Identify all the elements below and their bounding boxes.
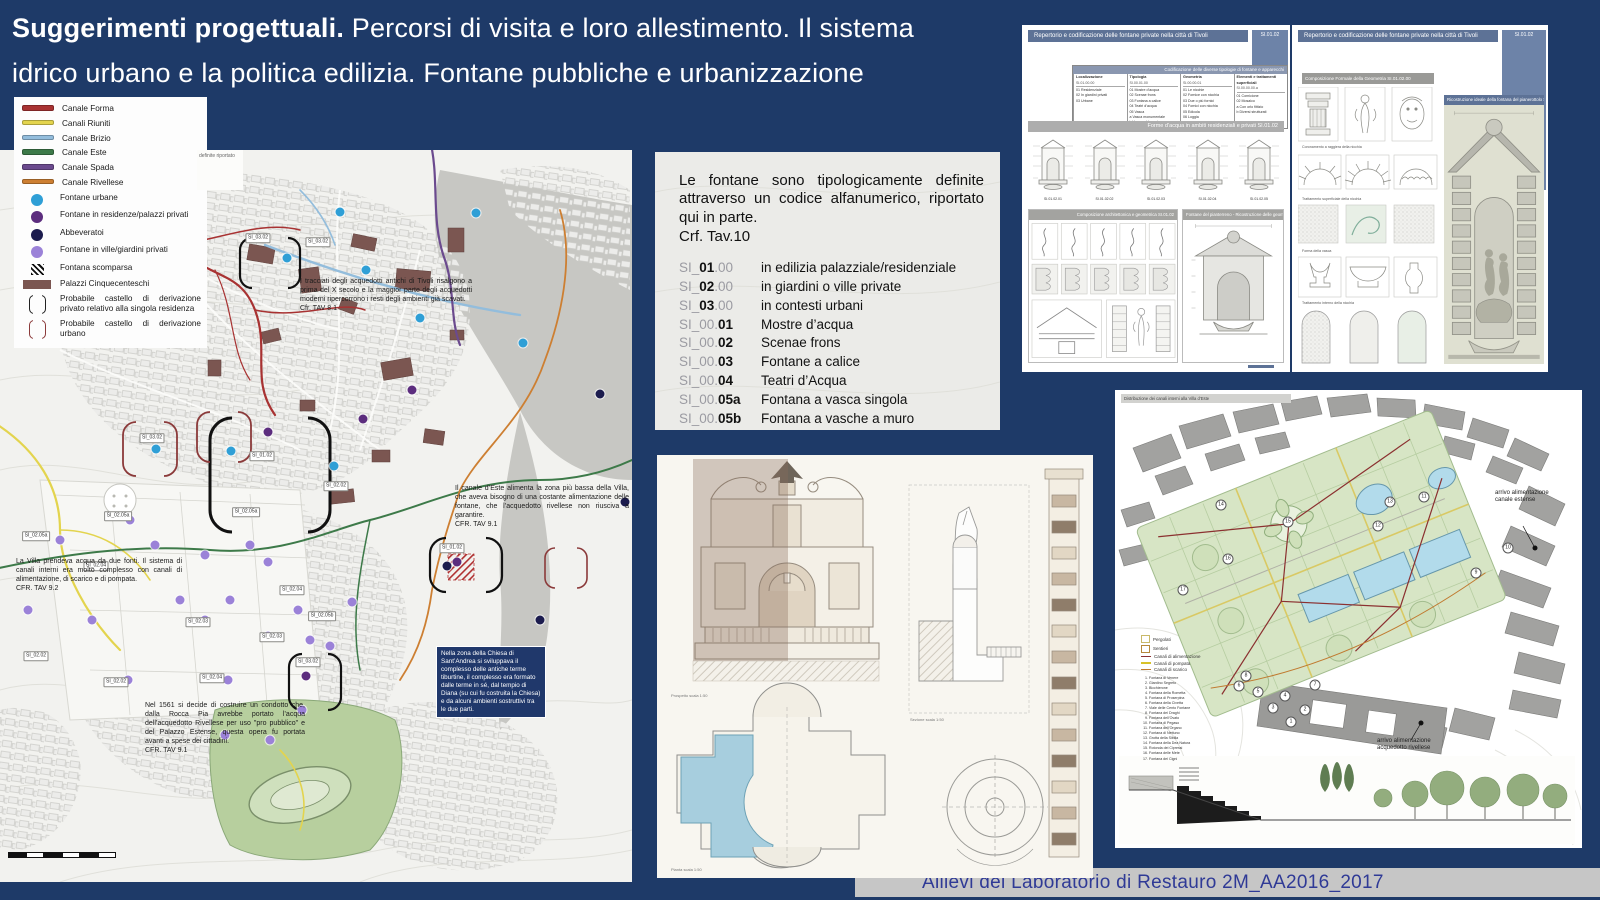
garden-legend-item: Pergolati bbox=[1141, 635, 1233, 643]
code-row: SI_00.01 Mostre d’acqua bbox=[679, 316, 984, 335]
fountain-dot bbox=[152, 445, 161, 454]
garden-legend-item: Canali di scarico bbox=[1141, 667, 1233, 672]
legend-swatch bbox=[22, 295, 52, 314]
code-row: SI_02.00 in giardini o ville private bbox=[679, 278, 984, 297]
fountain-number-marker: 3 bbox=[1268, 703, 1279, 714]
legend-swatch bbox=[22, 135, 54, 141]
legend-swatch bbox=[22, 229, 52, 241]
caption-sezione: Sezione scala 1:50 bbox=[910, 717, 944, 722]
caption-prospetto: Prospetto scala 1:50 bbox=[671, 693, 707, 698]
fountain-dot bbox=[264, 558, 273, 567]
thumbnail-caption: SI.01.02.03 bbox=[1133, 197, 1179, 201]
legend-swatch bbox=[22, 194, 52, 206]
code-description: in giardini o ville private bbox=[761, 278, 901, 297]
fountain-dot bbox=[283, 254, 292, 263]
tivoli-map-panel: Canale Forma Canali Riuniti Canale Brizi… bbox=[0, 150, 632, 882]
legend-label: Palazzi Cinquecenteschi bbox=[60, 279, 149, 289]
repertorio-panel-a: Repertorio e codificazione delle fontane… bbox=[1022, 25, 1290, 372]
legend-item: Palazzi Cinquecenteschi bbox=[22, 279, 201, 289]
fountain-dot bbox=[176, 596, 185, 605]
panel-a-header: Repertorio e codificazione delle fontane… bbox=[1028, 30, 1248, 42]
garden-legend: Pergolati Sentieri Canali di alimentazio… bbox=[1141, 635, 1233, 762]
fountain-number-marker: 1 bbox=[1286, 717, 1297, 728]
fountain-codes-panel: Le fontane sono tipologicamente definite… bbox=[655, 152, 1000, 430]
fountain-number-marker: 7 bbox=[1310, 680, 1321, 691]
fountain-number-marker: 9 bbox=[1471, 568, 1482, 579]
fountain-code-chip: SI_03.02 bbox=[245, 233, 270, 243]
villa-este-panel: Distribuzione dei canali interni alla Vi… bbox=[1115, 390, 1582, 848]
fountain-thumbnail: SI.01.02.03 bbox=[1133, 136, 1179, 201]
legend-item: Fontane in residenze/palazzi privati bbox=[22, 210, 201, 223]
villa-este-artwork bbox=[1115, 390, 1582, 848]
fountain-dot bbox=[596, 390, 605, 399]
code-row: SI_00.05b Fontana a vasche a muro bbox=[679, 410, 984, 429]
garden-fountain-list: Fontana di VenereGiardino SegretoBicchie… bbox=[1141, 676, 1233, 762]
panel-b-band: Ricostruzione ideale della fontana del p… bbox=[1444, 95, 1544, 105]
code-description: Fontana a vasca singola bbox=[761, 391, 907, 410]
legend-label: Abbeveratoi bbox=[60, 228, 104, 238]
legend-item: Fontana scomparsa bbox=[22, 263, 201, 275]
fountain-dot bbox=[302, 672, 311, 681]
code-description: Mostre d’acqua bbox=[761, 316, 853, 335]
fountain-number-marker: 2 bbox=[1300, 705, 1311, 716]
legend-label: Fontane in residenze/palazzi privati bbox=[60, 210, 188, 220]
codes-reference: Crf. Tav.10 bbox=[679, 228, 984, 245]
fountain-dot bbox=[56, 536, 65, 545]
panel-b-catalog-artwork bbox=[1298, 87, 1438, 365]
legend-swatch bbox=[22, 164, 54, 170]
code-id: SI_02.00 bbox=[679, 278, 761, 297]
fountain-code-chip: SI_02.05a bbox=[104, 511, 132, 521]
legend-item: Probabile castello di derivazione privat… bbox=[22, 294, 201, 315]
fountain-code-chip: SI_01.02 bbox=[249, 451, 274, 461]
fountain-code-chip: SI_03.02 bbox=[139, 433, 164, 443]
fountain-dot bbox=[306, 636, 315, 645]
title-rest: Percorsi di visita e loro allestimento. … bbox=[344, 13, 914, 43]
thumbnail-caption: SI.01.02.02 bbox=[1082, 197, 1128, 201]
code-description: Fontane a calice bbox=[761, 353, 860, 372]
code-row: SI_00.02 Scenae frons bbox=[679, 334, 984, 353]
legend-swatch bbox=[22, 280, 52, 289]
fountain-thumbnail: SI.01.02.05 bbox=[1236, 136, 1282, 201]
code-id: SI_00.04 bbox=[679, 372, 761, 391]
fountain-number-marker: 8 bbox=[1241, 671, 1252, 682]
slide-root: Suggerimenti progettuali. Percorsi di vi… bbox=[0, 0, 1600, 900]
code-row: SI_00.04 Teatri d’Acqua bbox=[679, 372, 984, 391]
title-bold: Suggerimenti progettuali. bbox=[12, 13, 344, 43]
legend-swatch bbox=[22, 120, 54, 126]
fountain-code-chip: SI_02.03 bbox=[185, 617, 210, 627]
code-id: SI_00.05a bbox=[679, 391, 761, 410]
fountain-thumbnail: SI.01.02.01 bbox=[1030, 136, 1076, 201]
fountain-dot bbox=[359, 415, 368, 424]
fountain-reconstruction bbox=[1444, 105, 1544, 364]
code-row: SI_03.00 in contesti urbani bbox=[679, 297, 984, 316]
map-label-fragment: definite riportato bbox=[197, 150, 243, 190]
panel-b-header: Repertorio e codificazione delle fontane… bbox=[1298, 30, 1498, 42]
codification-column: Localizzazione SI.01.00.00 01 Residenzia… bbox=[1073, 74, 1127, 128]
thumbnail-caption: SI.01.02.04 bbox=[1185, 197, 1231, 201]
panel-a-band: Forme d’acqua in ambiti residenziali e p… bbox=[1028, 121, 1284, 132]
fountain-number-marker: 16 bbox=[1223, 554, 1234, 565]
composizione-subpanel-header: Composizione architettonica e geometrica… bbox=[1029, 210, 1177, 220]
legend-item: Canale Brizio bbox=[22, 134, 201, 144]
legend-swatch bbox=[22, 179, 54, 185]
code-description: Scenae frons bbox=[761, 334, 841, 353]
legend-label: Canale Este bbox=[62, 148, 107, 158]
thumbnail-caption: SI.01.02.01 bbox=[1030, 197, 1076, 201]
map-scale-bar bbox=[8, 852, 116, 858]
fountain-number-marker: 10 bbox=[1503, 543, 1514, 554]
fountain-dot bbox=[326, 642, 335, 651]
ricostruzione-artwork bbox=[1183, 220, 1284, 352]
legend-swatch bbox=[22, 246, 52, 258]
fountain-code-chip: SI_01.02 bbox=[439, 543, 464, 553]
code-id: SI_00.02 bbox=[679, 334, 761, 353]
title-line-2: idrico urbano e la politica edilizia. Fo… bbox=[12, 51, 1020, 96]
code-id: SI_00.03 bbox=[679, 353, 761, 372]
code-row: SI_01.00 in edilizia palazziale/residenz… bbox=[679, 259, 984, 278]
legend-label: Fontana scomparsa bbox=[60, 263, 132, 273]
codification-columns: Localizzazione SI.01.00.00 01 Residenzia… bbox=[1073, 74, 1287, 128]
legend-label: Canali Riuniti bbox=[62, 119, 110, 129]
fountain-dot bbox=[264, 428, 273, 437]
code-description: in contesti urbani bbox=[761, 297, 863, 316]
map-note: Nella zona della Chiesa di Sant’Andrea s… bbox=[436, 646, 546, 718]
code-description: Fontana a vasche a muro bbox=[761, 410, 914, 429]
category-label: Trattamento superficiale della nicchia bbox=[1302, 197, 1361, 201]
codes-list: SI_01.00 in edilizia palazziale/residenz… bbox=[679, 259, 984, 429]
fountain-dot bbox=[227, 447, 236, 456]
map-note: Nel 1561 si decide di costruire un condo… bbox=[145, 702, 305, 756]
category-label: Forma della vasca bbox=[1302, 249, 1331, 253]
legend-label: Fontane in ville/giardini privati bbox=[60, 245, 168, 255]
composizione-artwork bbox=[1029, 220, 1178, 362]
fountain-dot bbox=[224, 676, 233, 685]
fountain-dot bbox=[88, 616, 97, 625]
category-label: Coronamento a raggiera della nicchia bbox=[1302, 145, 1362, 149]
fountain-number-marker: 5 bbox=[1253, 687, 1264, 698]
garden-legend-swatches: Pergolati Sentieri Canali di alimentazio… bbox=[1141, 635, 1233, 672]
fountain-code-chip: SI_03.02 bbox=[295, 657, 320, 667]
fountain-drawings-panel: Prospetto scala 1:50 Sezione scala 1:50 … bbox=[657, 455, 1093, 878]
code-row: SI_00.03 Fontane a calice bbox=[679, 353, 984, 372]
fountain-code-chip: SI_02.02 bbox=[103, 677, 128, 687]
codification-column: Tipologia SI.00.01.00 01 Mostre d’acqua0… bbox=[1127, 74, 1181, 128]
fountain-number-marker: 12 bbox=[1373, 521, 1384, 532]
code-description: Teatri d’Acqua bbox=[761, 372, 847, 391]
fountain-dot bbox=[246, 541, 255, 550]
fountain-thumbnail: SI.01.02.02 bbox=[1082, 136, 1128, 201]
repertorio-panel-b: Repertorio e codificazione delle fontane… bbox=[1292, 25, 1548, 372]
legend-label: Canale Spada bbox=[62, 163, 114, 173]
title-line-1: Suggerimenti progettuali. Percorsi di vi… bbox=[12, 6, 1020, 51]
annotation-canale-estense: arrivo alimentazione canale estense bbox=[1495, 490, 1567, 504]
fountain-dot bbox=[348, 598, 357, 607]
fountain-code-chip: SI_02.03 bbox=[259, 632, 284, 642]
fountain-dot bbox=[336, 208, 345, 217]
fountain-dot bbox=[519, 339, 528, 348]
legend-swatch bbox=[22, 211, 52, 223]
fountain-code-chip: SI_02.05a bbox=[22, 531, 50, 541]
fountain-number-marker: 15 bbox=[1283, 517, 1294, 528]
fountain-dot bbox=[151, 541, 160, 550]
garden-fountain-name: Fontana dei Cigni bbox=[1149, 757, 1233, 762]
fountain-number-marker: 13 bbox=[1385, 497, 1396, 508]
fountain-number-marker: 14 bbox=[1216, 500, 1227, 511]
fountain-reconstruction-artwork bbox=[1444, 105, 1544, 364]
fountain-thumbnails: SI.01.02.01 SI.01.02.02 SI.01.02.03 SI.0… bbox=[1030, 136, 1282, 201]
legend-swatch bbox=[22, 264, 52, 275]
fountain-code-chip: SI_02.04 bbox=[279, 585, 304, 595]
fountain-thumbnail: SI.01.02.04 bbox=[1185, 136, 1231, 201]
category-label: Trattamento interno della nicchia bbox=[1302, 301, 1354, 305]
garden-panel-header: Distribuzione dei canali interni alla Vi… bbox=[1121, 394, 1291, 403]
legend-label: Probabile castello di derivazione privat… bbox=[60, 294, 201, 315]
legend-swatch bbox=[22, 149, 54, 155]
fountain-number-marker: 17 bbox=[1178, 585, 1189, 596]
codes-paragraph: Le fontane sono tipologicamente definite… bbox=[679, 172, 984, 227]
legend-item: Canale Spada bbox=[22, 163, 201, 173]
page-title: Suggerimenti progettuali. Percorsi di vi… bbox=[12, 6, 1020, 96]
garden-legend-item: Sentieri bbox=[1141, 645, 1233, 653]
legend-item: Canali Riuniti bbox=[22, 119, 201, 129]
fountain-dot bbox=[294, 606, 303, 615]
fountain-dot bbox=[408, 386, 417, 395]
codification-table-title: Codificazione delle diverse tipologie di… bbox=[1073, 66, 1287, 74]
composizione-subpanel: Composizione architettonica e geometrica… bbox=[1028, 209, 1178, 363]
ricostruzione-subpanel-header: Fontane del pianterreno - Ricostruzione … bbox=[1183, 210, 1283, 220]
fountain-number-marker: 6 bbox=[1234, 681, 1245, 692]
legend-item: Canale Forma bbox=[22, 104, 201, 114]
panel-a-scale-dash bbox=[1248, 365, 1274, 368]
panel-b-subheader: Composizione Formale della Geometria SI.… bbox=[1302, 73, 1434, 84]
fountain-dot bbox=[24, 606, 33, 615]
fountain-dot bbox=[362, 266, 371, 275]
legend-item: Fontane urbane bbox=[22, 193, 201, 206]
legend-item: Canale Rivellese bbox=[22, 178, 201, 188]
caption-pianta: Pianta scala 1:50 bbox=[671, 867, 702, 872]
fountain-dot bbox=[416, 314, 425, 323]
ricostruzione-subpanel: Fontane del pianterreno - Ricostruzione … bbox=[1182, 209, 1284, 363]
legend-item: Probabile castello di derivazione urbano bbox=[22, 319, 201, 340]
code-id: SI_00.05b bbox=[679, 410, 761, 429]
fountain-dot bbox=[453, 558, 462, 567]
map-note: Il canale d’Este alimenta la zona più ba… bbox=[455, 485, 629, 530]
legend-label: Canale Forma bbox=[62, 104, 114, 114]
annotation-acquedotto-rivellese: arrivo alimentazione acquedotto rivelles… bbox=[1377, 738, 1457, 752]
fountain-drawings-artwork bbox=[657, 455, 1093, 878]
codification-column: Elementi e trattamenti superficiali SI.0… bbox=[1234, 74, 1288, 128]
legend-item: Canale Este bbox=[22, 148, 201, 158]
codification-table: Codificazione delle diverse tipologie di… bbox=[1072, 65, 1288, 129]
legend-label: Canale Brizio bbox=[62, 134, 111, 144]
legend-item: Fontane in ville/giardini privati bbox=[22, 245, 201, 258]
codification-column: Geometria SI.00.00.01 01 Le nicchie02 Fo… bbox=[1180, 74, 1234, 128]
legend-label: Canale Rivellese bbox=[62, 178, 123, 188]
fountain-code-chip: SI_02.05a bbox=[232, 507, 260, 517]
fountain-code-chip: SI_03.02 bbox=[305, 237, 330, 247]
legend-item: Abbeveratoi bbox=[22, 228, 201, 241]
fountain-number-marker: 11 bbox=[1419, 492, 1430, 503]
code-id: SI_00.01 bbox=[679, 316, 761, 335]
fountain-dot bbox=[536, 616, 545, 625]
fountain-code-chip: SI_02.02 bbox=[323, 481, 348, 491]
fountain-dot bbox=[443, 562, 452, 571]
fountain-code-chip: SI_02.04 bbox=[199, 673, 224, 683]
fountain-dot bbox=[201, 551, 210, 560]
fountain-dot bbox=[226, 596, 235, 605]
garden-legend-item: Canali di alimentazione bbox=[1141, 654, 1233, 659]
fountain-code-chip: SI_02.02 bbox=[23, 651, 48, 661]
map-legend: Canale Forma Canali Riuniti Canale Brizi… bbox=[14, 97, 207, 348]
code-row: SI_00.05a Fontana a vasca singola bbox=[679, 391, 984, 410]
code-id: SI_01.00 bbox=[679, 259, 761, 278]
legend-label: Probabile castello di derivazione urbano bbox=[60, 319, 201, 340]
map-note: I tracciati degli acquedotti antichi di … bbox=[300, 278, 472, 314]
code-id: SI_03.00 bbox=[679, 297, 761, 316]
code-description: in edilizia palazziale/residenziale bbox=[761, 259, 956, 278]
fountain-dot bbox=[472, 209, 481, 218]
fountain-number-marker: 4 bbox=[1280, 691, 1291, 702]
legend-swatch bbox=[22, 105, 54, 111]
garden-legend-item: Canali di pompata bbox=[1141, 661, 1233, 666]
legend-label: Fontane urbane bbox=[60, 193, 118, 203]
legend-swatch bbox=[22, 320, 52, 339]
fountain-dot bbox=[330, 462, 339, 471]
fountain-code-chip: SI_02.05b bbox=[308, 611, 336, 621]
thumbnail-caption: SI.01.02.05 bbox=[1236, 197, 1282, 201]
map-note: La Villa prendeva acqua da due fonti. Il… bbox=[16, 558, 182, 594]
